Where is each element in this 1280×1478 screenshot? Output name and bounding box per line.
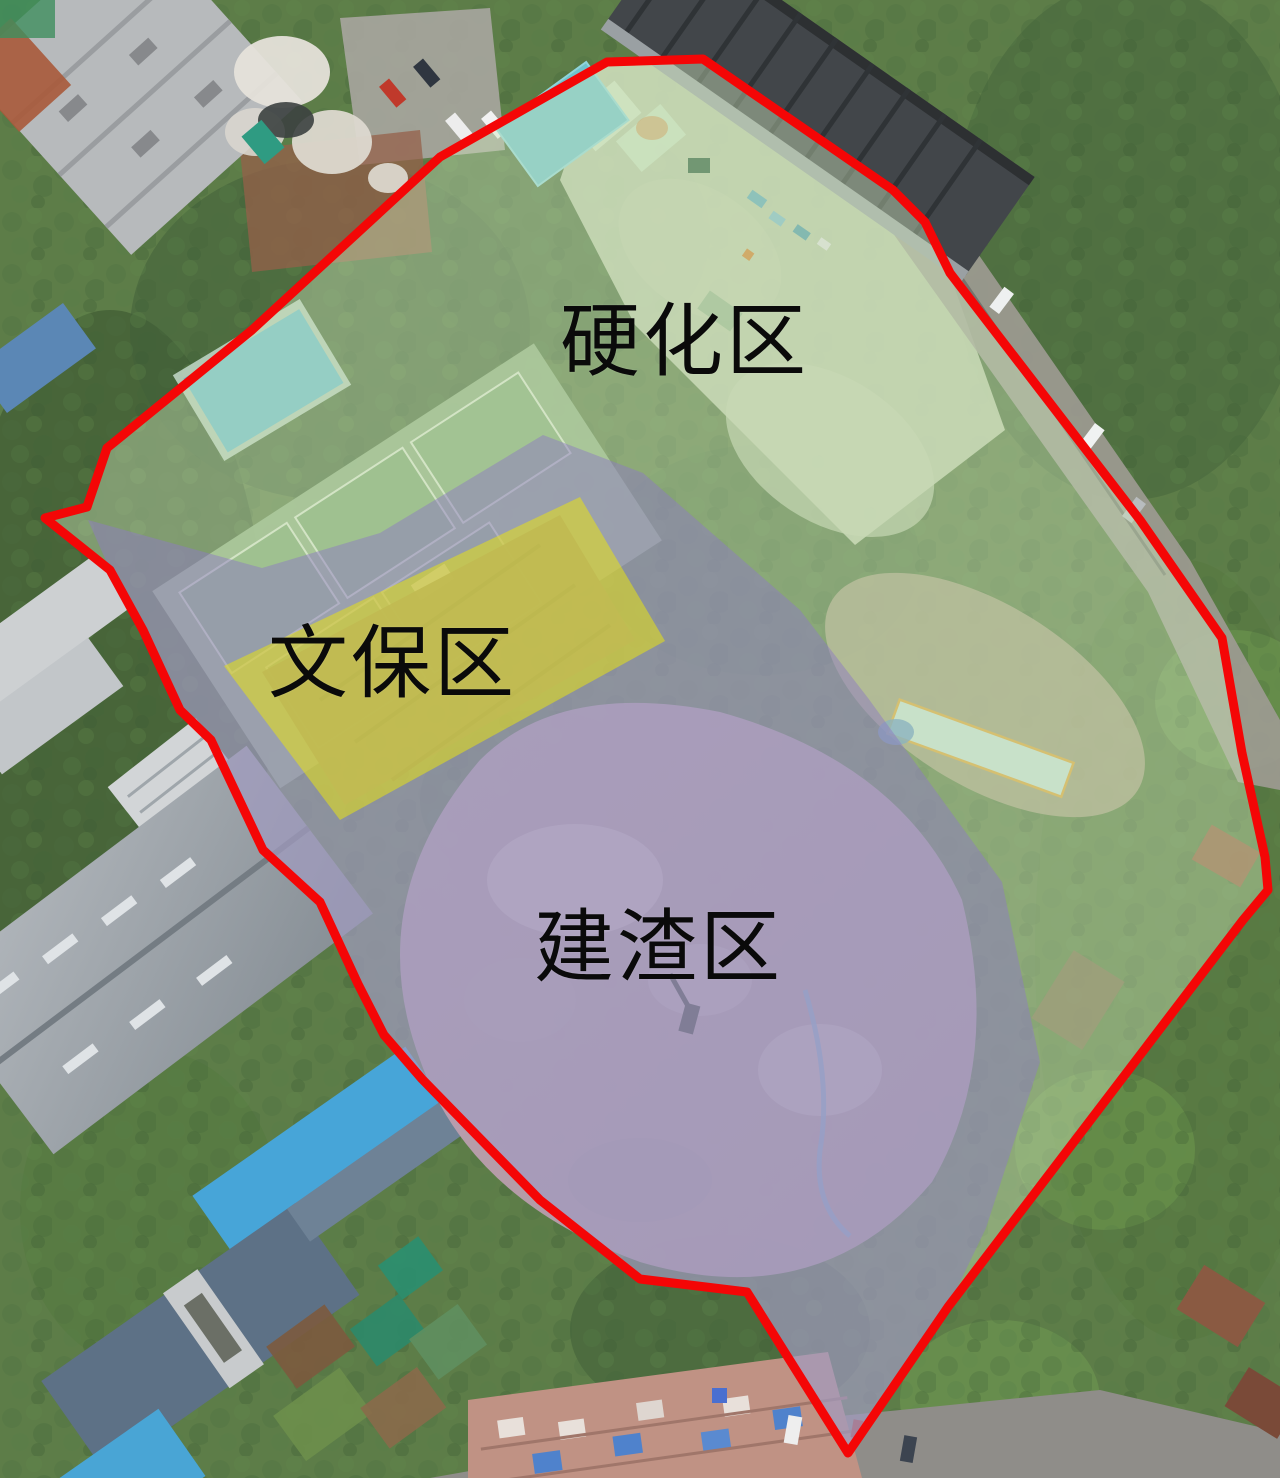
zone-label-debris: 建渣区 [534,908,783,988]
zone-label-hardened: 硬化区 [560,302,809,382]
aerial-zoning-map: 硬化区 文保区 建渣区 [0,0,1280,1478]
aerial-photo-canvas [0,0,1280,1478]
zone-label-cultural: 文保区 [268,624,517,704]
teal-playground-corner [0,0,55,38]
